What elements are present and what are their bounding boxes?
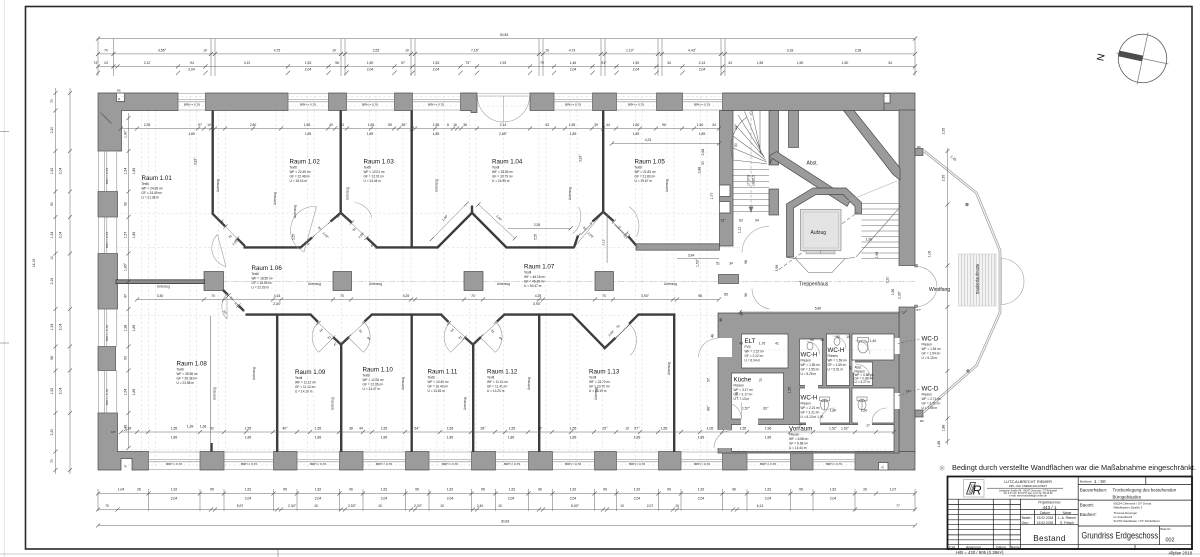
svg-text:1,52: 1,52 xyxy=(447,488,454,492)
svg-text:43: 43 xyxy=(739,342,743,346)
svg-text:95: 95 xyxy=(210,488,214,492)
svg-text:1,52: 1,52 xyxy=(381,488,388,492)
svg-text:WF = 12.06 m²: WF = 12.06 m² xyxy=(363,378,384,382)
svg-text:2,20: 2,20 xyxy=(50,127,54,134)
svg-text:70: 70 xyxy=(759,378,763,382)
svg-text:1,07: 1,07 xyxy=(890,488,897,492)
svg-text:GF = 21.83 m²: GF = 21.83 m² xyxy=(635,175,656,179)
svg-text:1,05: 1,05 xyxy=(707,427,714,431)
svg-text:70: 70 xyxy=(105,504,109,508)
svg-text:2,12°: 2,12° xyxy=(602,238,606,246)
svg-text:WC-H: WC-H xyxy=(801,395,818,402)
svg-text:30,83: 30,83 xyxy=(500,33,509,37)
svg-text:2,16: 2,16 xyxy=(50,278,54,285)
svg-text:Raum 1.02: Raum 1.02 xyxy=(290,159,321,166)
svg-text:Fliesen: Fliesen xyxy=(801,402,812,406)
svg-text:WF = 1.55 m²: WF = 1.55 m² xyxy=(801,363,820,367)
svg-text:1,89: 1,89 xyxy=(447,436,454,440)
svg-text:1,55: 1,55 xyxy=(788,387,792,394)
svg-text:WF = 10.40 m²: WF = 10.40 m² xyxy=(428,380,449,384)
svg-text:96: 96 xyxy=(538,488,542,492)
svg-text:2,04: 2,04 xyxy=(245,497,252,501)
svg-text:34: 34 xyxy=(712,123,716,127)
svg-text:GF = 1.54 m²: GF = 1.54 m² xyxy=(922,352,941,356)
svg-text:18°: 18° xyxy=(111,430,116,434)
svg-text:U = 7.13 m: U = 7.13 m xyxy=(734,397,750,401)
svg-text:U = 3.27 m: U = 3.27 m xyxy=(855,380,871,384)
svg-text:1,89: 1,89 xyxy=(698,436,705,440)
svg-text:Raum 1.01: Raum 1.01 xyxy=(142,175,173,182)
svg-text:34: 34 xyxy=(734,126,738,130)
svg-text:57°: 57° xyxy=(634,427,640,431)
svg-text:1,10°: 1,10° xyxy=(626,49,635,53)
svg-text:Textil: Textil xyxy=(428,376,436,380)
svg-text:70: 70 xyxy=(602,294,606,298)
svg-text:BRH = 0,76: BRH = 0,76 xyxy=(694,462,710,466)
svg-text:Fliesen: Fliesen xyxy=(922,393,933,397)
svg-text:66°: 66° xyxy=(707,405,711,411)
svg-text:94: 94 xyxy=(190,61,194,65)
svg-text:Unterzug: Unterzug xyxy=(273,192,277,205)
svg-text:WF = 3.17 m²: WF = 3.17 m² xyxy=(734,388,753,392)
svg-text:Fliesen: Fliesen xyxy=(734,384,745,388)
svg-text:1,53°: 1,53° xyxy=(696,258,700,267)
svg-text:1,89: 1,89 xyxy=(508,436,515,440)
svg-text:1,88: 1,88 xyxy=(942,425,946,432)
svg-text:1,98: 1,98 xyxy=(875,252,879,259)
svg-text:GF = 35.38 m²: GF = 35.38 m² xyxy=(177,377,198,381)
svg-text:4,43°: 4,43° xyxy=(688,49,697,53)
svg-text:BRH = 0,76: BRH = 0,76 xyxy=(105,325,109,341)
svg-text:1,55: 1,55 xyxy=(315,427,322,431)
svg-text:Textil: Textil xyxy=(252,272,260,276)
svg-text:16: 16 xyxy=(453,123,457,127)
svg-text:1,50: 1,50 xyxy=(633,123,640,127)
svg-text:3,55°: 3,55° xyxy=(158,49,167,53)
svg-text:2,34°: 2,34° xyxy=(288,504,297,508)
svg-text:GF = 11.12 m²: GF = 11.12 m² xyxy=(295,385,315,389)
svg-text:Fliesen: Fliesen xyxy=(922,343,933,347)
svg-text:2,04: 2,04 xyxy=(508,497,515,501)
svg-text:13°: 13° xyxy=(720,219,726,223)
svg-text:Maßstab:: Maßstab: xyxy=(1080,480,1093,484)
svg-text:1,34: 1,34 xyxy=(50,324,54,331)
svg-text:62°: 62° xyxy=(763,407,769,411)
svg-text:96: 96 xyxy=(662,123,666,127)
svg-text:51: 51 xyxy=(716,262,720,266)
svg-text:1,54: 1,54 xyxy=(124,389,128,396)
svg-text:95: 95 xyxy=(849,366,853,370)
svg-text:002: 002 xyxy=(1166,538,1175,544)
svg-text:44: 44 xyxy=(359,427,363,431)
svg-text:91°: 91° xyxy=(601,61,607,65)
svg-text:2,04: 2,04 xyxy=(634,497,641,501)
svg-text:Trockenlegung des bestehenden: Trockenlegung des bestehenden xyxy=(1113,488,1177,493)
svg-text:10: 10 xyxy=(440,504,444,508)
svg-text:10: 10 xyxy=(675,504,679,508)
svg-text:7,16°: 7,16° xyxy=(471,49,480,53)
svg-text:GF = 33.79 m²: GF = 33.79 m² xyxy=(492,175,513,179)
svg-text:2,04: 2,04 xyxy=(59,324,63,331)
svg-text:WF = 35.38 m²: WF = 35.38 m² xyxy=(177,372,198,376)
svg-text:WF = 1.69 m²: WF = 1.69 m² xyxy=(828,359,847,363)
svg-text:96: 96 xyxy=(335,61,339,65)
svg-text:U = 14.44 m: U = 14.44 m xyxy=(364,179,382,183)
svg-text:PVC: PVC xyxy=(745,345,752,349)
svg-text:44: 44 xyxy=(606,123,610,127)
svg-text:H/B = 420 / 905 (0.38m²): H/B = 420 / 905 (0.38m²) xyxy=(956,550,1004,555)
svg-text:Unterzug: Unterzug xyxy=(463,397,467,410)
svg-text:26: 26 xyxy=(137,488,141,492)
svg-text:WF = 11.12 m²: WF = 11.12 m² xyxy=(295,381,316,385)
svg-text:73°: 73° xyxy=(465,61,471,65)
svg-text:1,88: 1,88 xyxy=(937,441,941,448)
svg-text:Raum 1.05: Raum 1.05 xyxy=(635,159,666,166)
svg-text:Textil: Textil xyxy=(487,376,495,380)
svg-text:443 / 1: 443 / 1 xyxy=(1042,505,1056,510)
svg-text:95: 95 xyxy=(481,488,485,492)
svg-text:94: 94 xyxy=(755,219,759,223)
svg-text:3,93°: 3,93° xyxy=(579,154,583,162)
svg-text:1,76: 1,76 xyxy=(759,342,766,346)
svg-text:96: 96 xyxy=(732,488,736,492)
svg-text:96: 96 xyxy=(667,488,671,492)
svg-text:3,93°: 3,93° xyxy=(641,294,650,298)
svg-text:2,20: 2,20 xyxy=(50,429,54,436)
svg-text:BRH = 0,76: BRH = 0,76 xyxy=(760,462,776,466)
svg-text:1,55: 1,55 xyxy=(570,427,577,431)
svg-text:GF = 22.48 m²: GF = 22.48 m² xyxy=(290,175,311,179)
svg-text:97: 97 xyxy=(401,61,405,65)
svg-text:Raum 1.04: Raum 1.04 xyxy=(492,159,523,166)
svg-text:BRH = 0,76: BRH = 0,76 xyxy=(694,103,710,107)
svg-text:5,00°: 5,00° xyxy=(571,504,580,508)
svg-text:5,55: 5,55 xyxy=(292,234,296,240)
svg-text:2,14: 2,14 xyxy=(500,123,507,127)
svg-text:2,04: 2,04 xyxy=(367,68,374,72)
svg-text:48: 48 xyxy=(719,318,723,322)
svg-text:90: 90 xyxy=(810,338,814,342)
svg-text:GF = 46.15 m²: GF = 46.15 m² xyxy=(524,280,545,284)
svg-text:BRH = 0,76: BRH = 0,76 xyxy=(184,103,200,107)
svg-text:3,93°: 3,93° xyxy=(533,302,542,306)
svg-text:1,39: 1,39 xyxy=(187,424,194,428)
svg-text:96: 96 xyxy=(603,488,607,492)
svg-text:1,55: 1,55 xyxy=(433,123,440,127)
svg-text:3,30: 3,30 xyxy=(157,294,164,298)
svg-text:Textil: Textil xyxy=(492,166,500,170)
svg-text:70: 70 xyxy=(471,294,475,298)
svg-text:U = 18.16 m: U = 18.16 m xyxy=(290,179,308,183)
svg-text:1,89: 1,89 xyxy=(699,132,706,136)
svg-text:3,12: 3,12 xyxy=(244,61,251,65)
svg-text:10: 10 xyxy=(545,49,549,53)
svg-text:2,04: 2,04 xyxy=(315,497,322,501)
svg-text:Raum 1.07: Raum 1.07 xyxy=(524,264,555,271)
svg-text:38: 38 xyxy=(349,427,353,431)
svg-text:BRH = 0,76: BRH = 0,76 xyxy=(362,103,378,107)
svg-text:4,25: 4,25 xyxy=(535,294,542,298)
svg-text:26: 26 xyxy=(863,488,867,492)
svg-text:3,83°: 3,83° xyxy=(194,157,198,165)
svg-text:50: 50 xyxy=(734,143,738,147)
svg-text:43: 43 xyxy=(728,61,732,65)
svg-text:1,39: 1,39 xyxy=(125,427,132,431)
svg-text:28°: 28° xyxy=(480,427,486,431)
svg-text:1,55: 1,55 xyxy=(661,427,668,431)
svg-text:Fliesen: Fliesen xyxy=(789,433,800,437)
svg-text:79: 79 xyxy=(540,61,544,65)
svg-text:1,89: 1,89 xyxy=(132,232,136,239)
svg-text:70: 70 xyxy=(50,459,54,463)
svg-text:1,46: 1,46 xyxy=(570,61,577,65)
svg-text:Unterzug: Unterzug xyxy=(497,282,510,286)
svg-text:GF = 2.22 m²: GF = 2.22 m² xyxy=(745,354,764,358)
svg-text:WF = 46.15 m²: WF = 46.15 m² xyxy=(524,275,545,279)
svg-text:87°: 87° xyxy=(917,308,922,312)
svg-text:4,73: 4,73 xyxy=(569,49,576,53)
svg-text:54°: 54° xyxy=(414,427,420,431)
svg-text:Raum 1.09: Raum 1.09 xyxy=(295,369,326,376)
svg-text:Fliesen: Fliesen xyxy=(828,354,839,358)
svg-text:2,04: 2,04 xyxy=(305,68,312,72)
svg-text:U = 23.98 m: U = 23.98 m xyxy=(177,381,195,385)
svg-text:U = 14.44 m: U = 14.44 m xyxy=(789,446,807,450)
svg-text:Unterzug: Unterzug xyxy=(527,377,531,390)
svg-text:1,96: 1,96 xyxy=(765,427,772,431)
svg-text:Unterzug: Unterzug xyxy=(665,179,669,192)
svg-text:Bauort:: Bauort: xyxy=(1080,503,1094,508)
svg-text:Küche: Küche xyxy=(734,377,752,384)
svg-text:24: 24 xyxy=(104,61,108,65)
svg-text:1,55: 1,55 xyxy=(368,123,375,127)
svg-text:4,23: 4,23 xyxy=(645,138,652,142)
svg-text:S. Fritsch: S. Fritsch xyxy=(1060,521,1074,525)
svg-text:Textil: Textil xyxy=(295,376,303,380)
svg-text:96: 96 xyxy=(349,488,353,492)
svg-text:10: 10 xyxy=(314,504,318,508)
svg-text:Raum 1.08: Raum 1.08 xyxy=(177,361,208,368)
svg-text:Grundriss Erdgeschoss: Grundriss Erdgeschoss xyxy=(1082,530,1159,541)
svg-text:WF = 2.21 m²: WF = 2.21 m² xyxy=(801,406,820,410)
svg-text:WC-D: WC-D xyxy=(922,386,939,393)
svg-text:2,07: 2,07 xyxy=(647,504,654,508)
svg-text:1,57: 1,57 xyxy=(124,232,128,239)
svg-text:85: 85 xyxy=(724,293,728,297)
svg-text:U = 14.20 m: U = 14.20 m xyxy=(487,389,505,393)
svg-text:15.02.2018: 15.02.2018 xyxy=(1037,516,1054,520)
svg-text:U = 5.25 m: U = 5.25 m xyxy=(801,372,817,376)
svg-text:2,53: 2,53 xyxy=(373,49,380,53)
svg-text:40°: 40° xyxy=(282,427,288,431)
svg-text:BRH = 0,76: BRH = 0,76 xyxy=(105,232,109,248)
svg-text:2,34°: 2,34° xyxy=(273,302,282,306)
svg-text:1,57°: 1,57° xyxy=(742,407,751,411)
svg-text:1,89: 1,89 xyxy=(132,389,136,396)
svg-text:1,06: 1,06 xyxy=(928,251,932,258)
svg-text:43: 43 xyxy=(340,123,344,127)
svg-text:Unterzug: Unterzug xyxy=(213,387,217,400)
svg-text:1,52: 1,52 xyxy=(509,488,516,492)
svg-text:2,65°: 2,65° xyxy=(499,132,508,136)
svg-text:Datum: Datum xyxy=(1040,511,1050,515)
svg-text:10: 10 xyxy=(50,256,54,260)
svg-text:Raum 1.03: Raum 1.03 xyxy=(364,159,395,166)
svg-text:WC-H: WC-H xyxy=(828,347,845,354)
svg-text:77: 77 xyxy=(896,504,900,508)
svg-text:Bürogebäudes: Bürogebäudes xyxy=(1113,494,1142,499)
svg-text:Raum 1.12: Raum 1.12 xyxy=(487,369,518,376)
svg-text:U = 22.29 m: U = 22.29 m xyxy=(252,286,270,290)
svg-text:R: R xyxy=(973,484,982,498)
svg-text:4,75: 4,75 xyxy=(274,49,281,53)
svg-text:Gez.:: Gez.: xyxy=(1022,521,1030,525)
svg-text:2,68: 2,68 xyxy=(701,149,705,156)
svg-text:1,52: 1,52 xyxy=(50,168,54,175)
svg-text:1,89: 1,89 xyxy=(171,436,178,440)
svg-text:GF = 6.68 m²: GF = 6.68 m² xyxy=(789,442,808,446)
svg-text:5,55: 5,55 xyxy=(534,234,538,240)
svg-text:1,89: 1,89 xyxy=(381,436,388,440)
svg-text:1,53: 1,53 xyxy=(433,61,440,65)
svg-text:BRH = 0,76: BRH = 0,76 xyxy=(826,462,842,466)
svg-text:BRH = 0,76: BRH = 0,76 xyxy=(310,462,326,466)
svg-text:1,89: 1,89 xyxy=(367,132,374,136)
svg-text:Blatt-Nr.:: Blatt-Nr.: xyxy=(1161,527,1172,531)
svg-text:10: 10 xyxy=(625,427,629,431)
svg-text:Textil: Textil xyxy=(142,182,150,186)
svg-text:BRH = 0,76: BRH = 0,76 xyxy=(442,462,458,466)
svg-text:Änderung: Änderung xyxy=(966,545,981,549)
svg-text:30,83: 30,83 xyxy=(501,520,510,524)
svg-text:37: 37 xyxy=(538,427,542,431)
svg-text:43: 43 xyxy=(545,123,549,127)
svg-text:WC-D: WC-D xyxy=(922,336,939,343)
svg-text:1,52: 1,52 xyxy=(830,488,837,492)
svg-text:1,55: 1,55 xyxy=(740,427,747,431)
svg-text:1,89: 1,89 xyxy=(315,436,322,440)
svg-text:15.02.2018: 15.02.2018 xyxy=(1037,521,1054,525)
svg-text:U = 50.47 m: U = 50.47 m xyxy=(524,284,542,288)
svg-text:70: 70 xyxy=(50,99,54,103)
svg-text:1,89: 1,89 xyxy=(132,168,136,175)
svg-text:39: 39 xyxy=(594,123,598,127)
svg-text:Textil: Textil xyxy=(364,166,372,170)
svg-text:3,94: 3,94 xyxy=(688,254,695,258)
svg-text:98: 98 xyxy=(744,260,748,264)
svg-text:10: 10 xyxy=(378,504,382,508)
svg-text:Unterzug: Unterzug xyxy=(401,377,405,390)
svg-text:Name: Name xyxy=(1011,545,1020,549)
svg-text:2,04: 2,04 xyxy=(188,68,195,72)
svg-text:Unterzug: Unterzug xyxy=(346,187,350,200)
svg-text:GF = 23.70 m²: GF = 23.70 m² xyxy=(589,385,610,389)
svg-text:Bedingt durch verstellte Wandf: Bedingt durch verstellte Wandflächen war… xyxy=(952,463,1196,472)
svg-text:1,52°: 1,52° xyxy=(841,427,850,431)
svg-text:1 : 50: 1 : 50 xyxy=(1094,479,1106,484)
svg-text:17 STG: 17 STG xyxy=(747,174,751,186)
svg-text:10: 10 xyxy=(203,49,207,53)
svg-text:U = 24.95 m: U = 24.95 m xyxy=(492,179,510,183)
svg-text:2,04: 2,04 xyxy=(59,232,63,239)
svg-text:36: 36 xyxy=(463,123,467,127)
svg-text:Textil: Textil xyxy=(363,374,371,378)
svg-text:2,04: 2,04 xyxy=(447,497,454,501)
svg-text:Textil: Textil xyxy=(635,166,643,170)
svg-text:WF = 21.83 m²: WF = 21.83 m² xyxy=(635,170,656,174)
svg-text:3,18: 3,18 xyxy=(787,49,794,53)
svg-text:U = 14.10 m: U = 14.10 m xyxy=(295,390,313,394)
svg-text:Name: Name xyxy=(1063,511,1072,515)
svg-text:U = 21.38 m: U = 21.38 m xyxy=(142,196,160,200)
svg-text:1,50: 1,50 xyxy=(633,61,640,65)
svg-text:GF = 2.21 m²: GF = 2.21 m² xyxy=(801,411,820,415)
svg-text:2,25: 2,25 xyxy=(144,123,151,127)
svg-text:5,97: 5,97 xyxy=(237,504,244,508)
svg-text:Vorraum: Vorraum xyxy=(789,426,812,433)
svg-text:2,80: 2,80 xyxy=(250,123,257,127)
svg-text:1,50: 1,50 xyxy=(797,61,804,65)
svg-text:1,12: 1,12 xyxy=(738,227,742,234)
svg-text:93: 93 xyxy=(124,356,128,360)
svg-text:40: 40 xyxy=(329,123,333,127)
svg-text:Projektnummer: Projektnummer xyxy=(1038,500,1061,504)
svg-text:1,55: 1,55 xyxy=(245,427,252,431)
svg-text:8: 8 xyxy=(447,123,449,127)
svg-text:Textil: Textil xyxy=(524,271,532,275)
svg-text:1,52: 1,52 xyxy=(765,488,772,492)
svg-text:U = 5.51 m: U = 5.51 m xyxy=(828,368,844,372)
svg-text:RF: RF xyxy=(917,145,921,149)
svg-text:1,92: 1,92 xyxy=(171,488,178,492)
svg-text:WF = 23.70 m²: WF = 23.70 m² xyxy=(589,380,610,384)
svg-text:Zust.: Zust. xyxy=(949,545,957,549)
svg-text:Bauherr:: Bauherr: xyxy=(1080,512,1097,517)
svg-text:70: 70 xyxy=(104,49,108,53)
svg-text:Bearb.:: Bearb.: xyxy=(1022,516,1033,520)
svg-text:2,04: 2,04 xyxy=(381,497,388,501)
svg-text:14,19: 14,19 xyxy=(32,259,36,268)
svg-text:BRH = 0,76: BRH = 0,76 xyxy=(428,103,444,107)
svg-text:10: 10 xyxy=(820,338,824,342)
svg-text:GF = 11.41 m²: GF = 11.41 m² xyxy=(487,385,507,389)
svg-text:10: 10 xyxy=(405,49,409,53)
svg-text:Unterzug: Unterzug xyxy=(331,397,335,410)
svg-text:Unterzug: Unterzug xyxy=(664,282,677,286)
svg-text:LUTZ-ALBRECHT RIEMER: LUTZ-ALBRECHT RIEMER xyxy=(1004,479,1052,484)
svg-text:1,96: 1,96 xyxy=(891,289,895,296)
svg-text:26°: 26° xyxy=(401,123,407,127)
svg-text:1,52°: 1,52° xyxy=(829,427,838,431)
svg-text:48: 48 xyxy=(711,334,715,338)
svg-text:GF = 1.69 m²: GF = 1.69 m² xyxy=(828,363,847,367)
svg-text:BRH = 0,76: BRH = 0,76 xyxy=(628,103,644,107)
svg-text:1,55: 1,55 xyxy=(447,427,454,431)
svg-text:1,89: 1,89 xyxy=(634,436,641,440)
svg-text:10: 10 xyxy=(846,335,850,339)
svg-text:2,14: 2,14 xyxy=(699,61,706,65)
svg-text:1,04: 1,04 xyxy=(118,488,125,492)
svg-text:GF = 18.54 m²: GF = 18.54 m² xyxy=(252,281,273,285)
svg-text:1,77: 1,77 xyxy=(710,193,714,200)
svg-text:BRH = 0,76: BRH = 0,76 xyxy=(166,462,182,466)
svg-text:WF = 2.71 m²: WF = 2.71 m² xyxy=(922,397,941,401)
svg-text:GF = 24.09 m²: GF = 24.09 m² xyxy=(142,191,163,195)
svg-text:96: 96 xyxy=(744,293,748,297)
svg-text:U = 19.67 m: U = 19.67 m xyxy=(635,179,653,183)
svg-text:1,54: 1,54 xyxy=(124,168,128,175)
svg-text:92: 92 xyxy=(210,427,214,431)
